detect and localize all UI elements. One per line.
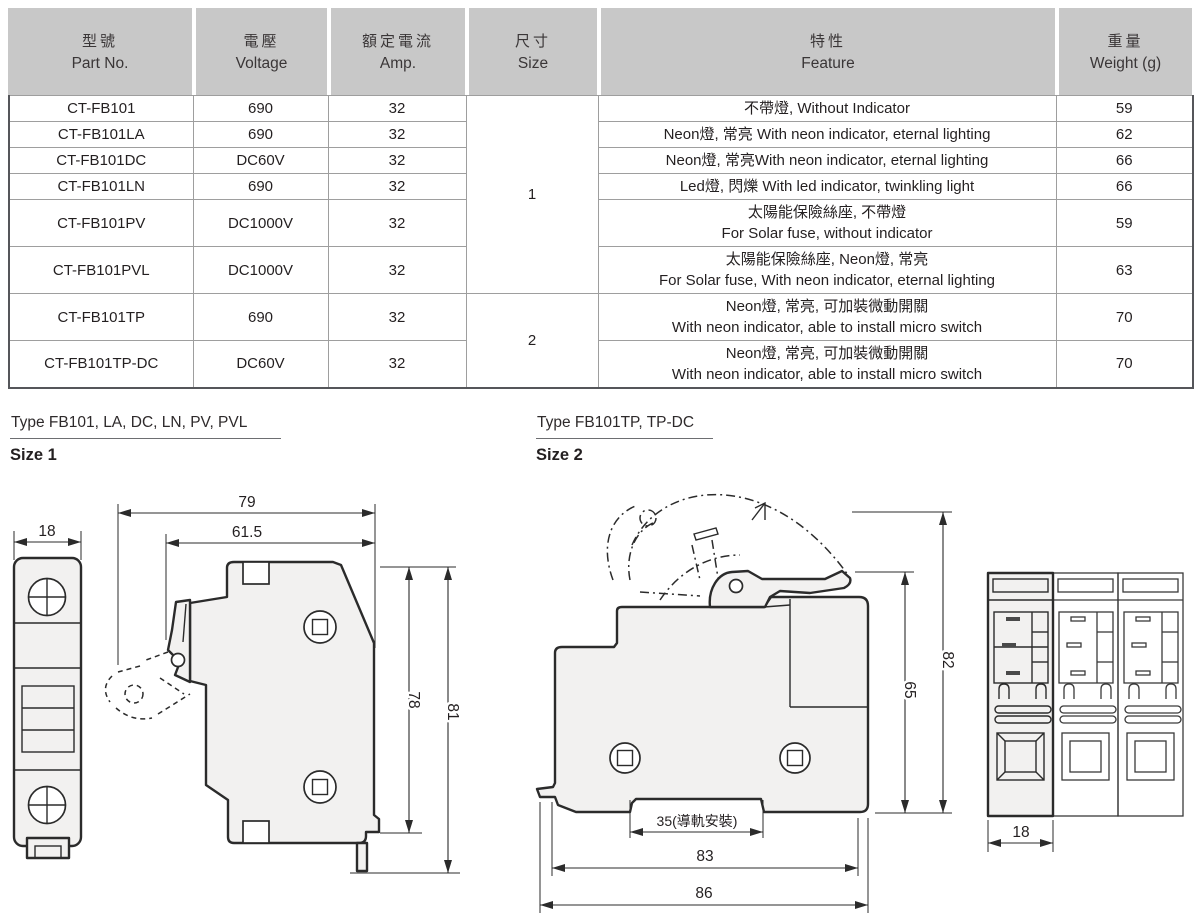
cell-voltage: DC1000V bbox=[193, 247, 328, 294]
cell-voltage: DC60V bbox=[193, 341, 328, 388]
table-row: CT-FB101DC DC60V 32 Neon燈, 常亮With neon i… bbox=[9, 148, 1193, 174]
cell-weight: 59 bbox=[1056, 200, 1193, 247]
cell-feature: Led燈, 閃爍 With led indicator, twinkling l… bbox=[598, 174, 1056, 200]
cell-size-1: 1 bbox=[466, 96, 598, 294]
cell-amp: 32 bbox=[328, 294, 466, 341]
cell-feature: 太陽能保險絲座, Neon燈, 常亮For Solar fuse, With n… bbox=[598, 247, 1056, 294]
cell-size-2: 2 bbox=[466, 294, 598, 388]
table-row: CT-FB101 690 32 1 不帶燈, Without Indicator… bbox=[9, 96, 1193, 122]
cell-part-no: CT-FB101 bbox=[9, 96, 193, 122]
cell-part-no: CT-FB101TP-DC bbox=[9, 341, 193, 388]
table-row: CT-FB101LN 690 32 Led燈, 閃爍 With led indi… bbox=[9, 174, 1193, 200]
dim-s1-body-width: 61.5 bbox=[232, 524, 262, 541]
cell-voltage: DC60V bbox=[193, 148, 328, 174]
cell-amp: 32 bbox=[328, 96, 466, 122]
cell-weight: 62 bbox=[1056, 122, 1193, 148]
table-row: CT-FB101TP-DC DC60V 32 Neon燈, 常亮, 可加裝微動開… bbox=[9, 341, 1193, 388]
cell-part-no: CT-FB101LA bbox=[9, 122, 193, 148]
size1-side-view: 79 61.5 bbox=[105, 494, 461, 873]
table-row: CT-FB101LA 690 32 Neon燈, 常亮 With neon in… bbox=[9, 122, 1193, 148]
cell-feature: 不帶燈, Without Indicator bbox=[598, 96, 1056, 122]
header-feature-zh: 特性 bbox=[810, 30, 846, 51]
dim-s2-rail-width: 35(導軌安裝) bbox=[657, 813, 738, 829]
cell-weight: 59 bbox=[1056, 96, 1193, 122]
table-body: CT-FB101 690 32 1 不帶燈, Without Indicator… bbox=[8, 95, 1194, 389]
section-size1: Type FB101, LA, DC, LN, PV, PVL Size 1 bbox=[10, 414, 281, 465]
header-voltage-en: Voltage bbox=[236, 55, 288, 73]
dim-s2-body-width: 83 bbox=[696, 848, 713, 865]
cell-voltage: DC1000V bbox=[193, 200, 328, 247]
cell-feature: Neon燈, 常亮 With neon indicator, eternal l… bbox=[598, 122, 1056, 148]
datasheet-page: 型號 Part No. 電壓 Voltage 額定電流 Amp. 尺寸 Size… bbox=[0, 0, 1200, 924]
cell-amp: 32 bbox=[328, 200, 466, 247]
size1-size-label: Size 1 bbox=[10, 446, 281, 465]
table-row: CT-FB101TP 690 32 2 Neon燈, 常亮, 可加裝微動開關Wi… bbox=[9, 294, 1193, 341]
table-row: CT-FB101PVL DC1000V 32 太陽能保險絲座, Neon燈, 常… bbox=[9, 247, 1193, 294]
spec-table: 型號 Part No. 電壓 Voltage 額定電流 Amp. 尺寸 Size… bbox=[8, 8, 1192, 389]
cell-voltage: 690 bbox=[193, 174, 328, 200]
cell-voltage: 690 bbox=[193, 96, 328, 122]
header-part-no: 型號 Part No. bbox=[8, 8, 192, 95]
header-size-en: Size bbox=[518, 55, 548, 73]
size2-type-label: Type FB101TP, TP-DC bbox=[536, 414, 713, 439]
size1-front-view: 18 bbox=[14, 523, 81, 858]
header-weight-en: Weight (g) bbox=[1090, 55, 1161, 73]
cell-amp: 32 bbox=[328, 122, 466, 148]
cell-amp: 32 bbox=[328, 174, 466, 200]
cell-part-no: CT-FB101TP bbox=[9, 294, 193, 341]
dim-s2-front-width: 18 bbox=[1012, 824, 1029, 841]
header-size-zh: 尺寸 bbox=[515, 30, 551, 51]
cell-part-no: CT-FB101PV bbox=[9, 200, 193, 247]
technical-drawings: 18 79 61.5 bbox=[0, 485, 1200, 924]
cell-feature: Neon燈, 常亮With neon indicator, eternal li… bbox=[598, 148, 1056, 174]
header-part-no-en: Part No. bbox=[72, 55, 129, 73]
cell-part-no: CT-FB101PVL bbox=[9, 247, 193, 294]
header-voltage: 電壓 Voltage bbox=[192, 8, 327, 95]
header-amp-en: Amp. bbox=[380, 55, 416, 73]
header-amp: 額定電流 Amp. bbox=[327, 8, 465, 95]
cell-weight: 66 bbox=[1056, 174, 1193, 200]
cell-weight: 70 bbox=[1056, 341, 1193, 388]
cell-weight: 66 bbox=[1056, 148, 1193, 174]
dim-s1-total-width: 79 bbox=[238, 494, 255, 511]
cell-voltage: 690 bbox=[193, 122, 328, 148]
header-weight-zh: 重量 bbox=[1107, 30, 1143, 51]
header-part-no-zh: 型號 bbox=[82, 30, 118, 51]
dim-s2-total-width: 86 bbox=[695, 885, 712, 902]
cell-weight: 70 bbox=[1056, 294, 1193, 341]
header-feature-en: Feature bbox=[801, 55, 854, 73]
header-amp-zh: 額定電流 bbox=[362, 30, 434, 51]
cell-amp: 32 bbox=[328, 247, 466, 294]
dim-s1-front-width: 18 bbox=[38, 523, 55, 540]
cell-weight: 63 bbox=[1056, 247, 1193, 294]
header-size: 尺寸 Size bbox=[465, 8, 597, 95]
cell-part-no: CT-FB101DC bbox=[9, 148, 193, 174]
cell-amp: 32 bbox=[328, 148, 466, 174]
size2-size-label: Size 2 bbox=[536, 446, 713, 465]
size2-front-view: 18 bbox=[988, 573, 1183, 852]
header-feature: 特性 Feature bbox=[597, 8, 1055, 95]
section-size2: Type FB101TP, TP-DC Size 2 bbox=[536, 414, 713, 465]
header-voltage-zh: 電壓 bbox=[243, 30, 279, 51]
dim-s2-body-height: 65 bbox=[901, 681, 918, 698]
dim-s1-total-height: 81 bbox=[444, 703, 461, 720]
table-header-row: 型號 Part No. 電壓 Voltage 額定電流 Amp. 尺寸 Size… bbox=[8, 8, 1192, 95]
cell-feature: Neon燈, 常亮, 可加裝微動開關With neon indicator, a… bbox=[598, 341, 1056, 388]
dim-s1-body-height: 78 bbox=[405, 691, 422, 708]
cell-part-no: CT-FB101LN bbox=[9, 174, 193, 200]
header-weight: 重量 Weight (g) bbox=[1055, 8, 1192, 95]
cell-voltage: 690 bbox=[193, 294, 328, 341]
size2-side-view: 65 82 35(導軌安裝) 83 86 bbox=[537, 495, 956, 913]
table-row: CT-FB101PV DC1000V 32 太陽能保險絲座, 不帶燈For So… bbox=[9, 200, 1193, 247]
cell-amp: 32 bbox=[328, 341, 466, 388]
cell-feature: 太陽能保險絲座, 不帶燈For Solar fuse, without indi… bbox=[598, 200, 1056, 247]
cell-feature: Neon燈, 常亮, 可加裝微動開關With neon indicator, a… bbox=[598, 294, 1056, 341]
size1-type-label: Type FB101, LA, DC, LN, PV, PVL bbox=[10, 414, 281, 439]
dim-s2-total-height: 82 bbox=[939, 651, 956, 668]
